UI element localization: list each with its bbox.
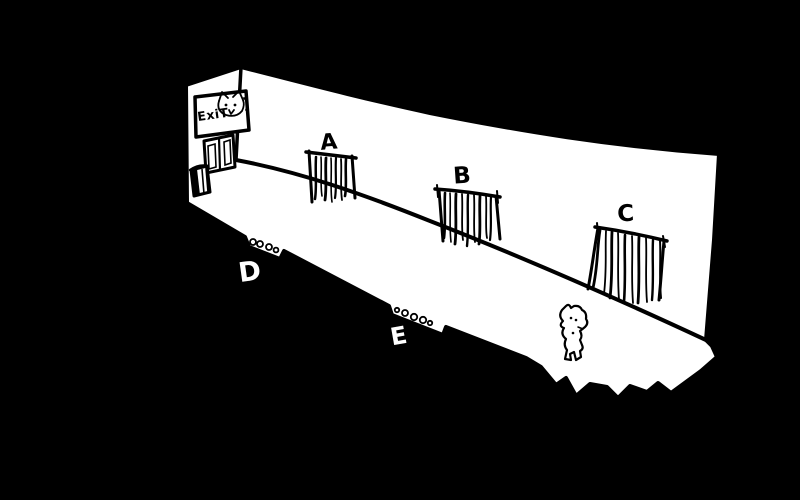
sketch-stage: ExiT A: [0, 0, 800, 500]
floor-label-d: D: [237, 255, 264, 289]
window-label-a: A: [319, 129, 338, 155]
trash-bin-icon: [190, 166, 210, 197]
window-label-c: C: [617, 201, 635, 228]
door-divider: [219, 138, 220, 170]
window-label-b: B: [452, 162, 471, 189]
sketch-canvas: ExiT A: [0, 0, 800, 500]
exit-sign: ExiT: [195, 91, 249, 137]
